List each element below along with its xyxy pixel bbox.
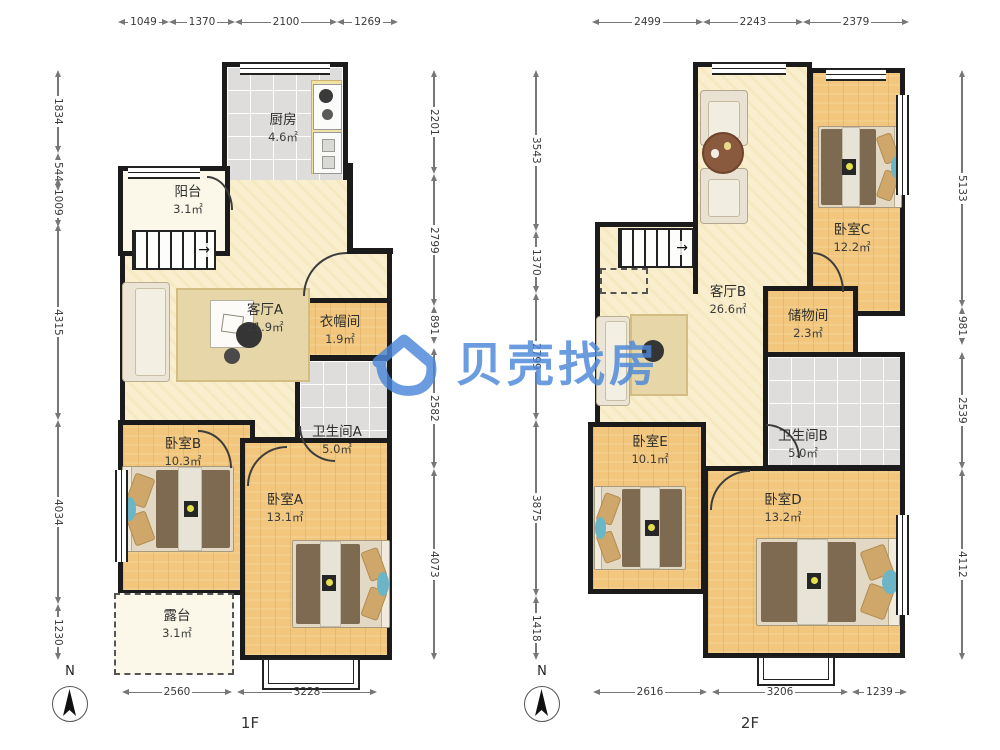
compass-needle-icon <box>525 687 558 720</box>
window <box>896 95 909 195</box>
f1-dim-left-1: 544 <box>52 153 64 178</box>
coffee-table <box>642 340 664 362</box>
stairs-2f: → <box>618 228 694 268</box>
f2-dim-left-2: 2799 <box>530 293 542 420</box>
f2-dim-top-0: 2499 <box>592 16 703 28</box>
f1-dim-right-0: 2201 <box>428 70 440 174</box>
f1-dim-right-4: 4073 <box>428 469 440 660</box>
f2-dim-left-0: 3543 <box>530 70 542 231</box>
window <box>240 62 330 75</box>
room-label-bathroom-b: 卫生间B5.0㎡ <box>778 428 828 460</box>
f1-dim-left-0: 1834 <box>52 70 64 153</box>
stairs-arrow-icon: → <box>675 241 689 255</box>
bed-bedroom-e <box>594 486 686 570</box>
f2-dim-right-3: 4112 <box>956 469 968 660</box>
f1-dim-top-0: 1049 <box>118 16 169 28</box>
round-table <box>702 132 744 174</box>
f1-dim-left-5: 1230 <box>52 604 64 660</box>
f2-dim-top-2: 2379 <box>803 16 909 28</box>
room-label-storage: 储物间2.3㎡ <box>788 308 829 340</box>
f2-dim-bottom-1: 3206 <box>712 686 848 698</box>
f1-dim-right-2: 891 <box>428 306 440 348</box>
f2-dim-bottom-0: 2616 <box>593 686 707 698</box>
bed-bedroom-d <box>756 538 900 626</box>
window <box>712 62 786 75</box>
room-label-bedroom-e: 卧室E10.1㎡ <box>631 434 668 466</box>
f2-dim-right-0: 5133 <box>956 70 968 307</box>
bed-bedroom-c <box>818 126 902 208</box>
room-label-kitchen: 厨房4.6㎡ <box>268 112 298 144</box>
room-label-balcony: 阳台3.1㎡ <box>173 184 203 216</box>
f2-dim-left-3: 3875 <box>530 420 542 596</box>
armchair <box>700 168 748 224</box>
f2-dim-bottom-2: 1239 <box>852 686 907 698</box>
compass-needle-icon <box>53 687 86 720</box>
f1-dim-bottom-0: 2560 <box>122 686 232 698</box>
stairs-1f: → <box>132 230 216 270</box>
room-label-bedroom-a: 卧室A13.1㎡ <box>266 492 303 524</box>
f1-dim-right-1: 2799 <box>428 174 440 306</box>
f1-dim-bottom-1: 3228 <box>237 686 377 698</box>
stairs-landing-dashed <box>600 268 648 294</box>
window <box>826 68 886 81</box>
floor-label-1f: 1F <box>241 714 259 732</box>
f2-dim-left-1: 1370 <box>530 231 542 293</box>
sink-icon <box>313 132 342 174</box>
f1-dim-top-2: 2100 <box>235 16 337 28</box>
room-label-cloakroom: 衣帽间1.9㎡ <box>320 314 361 346</box>
f2-dim-right-1: 981 <box>956 307 968 352</box>
sofa <box>596 316 630 406</box>
bed-bedroom-a <box>292 540 390 628</box>
room-label-bathroom-a: 卫生间A5.0㎡ <box>312 424 362 456</box>
f2-dim-right-2: 2539 <box>956 352 968 469</box>
compass-2f <box>524 686 560 722</box>
room-label-living-a: 客厅A21.9㎡ <box>246 302 283 334</box>
compass-n-label: N <box>65 664 75 679</box>
room-label-bedroom-b: 卧室B10.3㎡ <box>164 436 201 468</box>
window <box>896 515 909 615</box>
room-label-bedroom-d: 卧室D13.2㎡ <box>764 492 801 524</box>
room-label-living-b: 客厅B26.6㎡ <box>709 284 746 316</box>
floor-label-2f: 2F <box>741 714 759 732</box>
f1-dim-left-3: 4315 <box>52 224 64 420</box>
stairs-arrow-icon: → <box>197 243 211 257</box>
entry-nook-wall <box>347 163 393 254</box>
floorplan-page: → 厨房4.6㎡ 阳台3.1㎡ 客厅A21.9㎡ 衣帽间1.9㎡ 卫生间A5.0… <box>0 0 1000 750</box>
room-label-bedroom-c: 卧室C12.2㎡ <box>833 222 870 254</box>
bay-window-2f <box>757 656 835 686</box>
compass-1f <box>52 686 88 722</box>
window <box>115 470 128 562</box>
bed-bedroom-b <box>122 466 234 552</box>
f1-dim-left-4: 4034 <box>52 420 64 604</box>
f1-dim-top-3: 1269 <box>337 16 398 28</box>
room-label-terrace: 露台3.1㎡ <box>162 608 192 640</box>
stove-icon <box>313 84 342 130</box>
f2-dim-top-1: 2243 <box>703 16 803 28</box>
side-table <box>224 348 240 364</box>
compass-n-label: N <box>537 664 547 679</box>
f1-dim-right-3: 2582 <box>428 348 440 469</box>
f2-dim-left-4: 1418 <box>530 596 542 660</box>
sofa <box>122 282 170 382</box>
f1-dim-top-1: 1370 <box>169 16 235 28</box>
window <box>128 166 200 179</box>
f1-dim-left-2: 1009 <box>52 178 64 224</box>
